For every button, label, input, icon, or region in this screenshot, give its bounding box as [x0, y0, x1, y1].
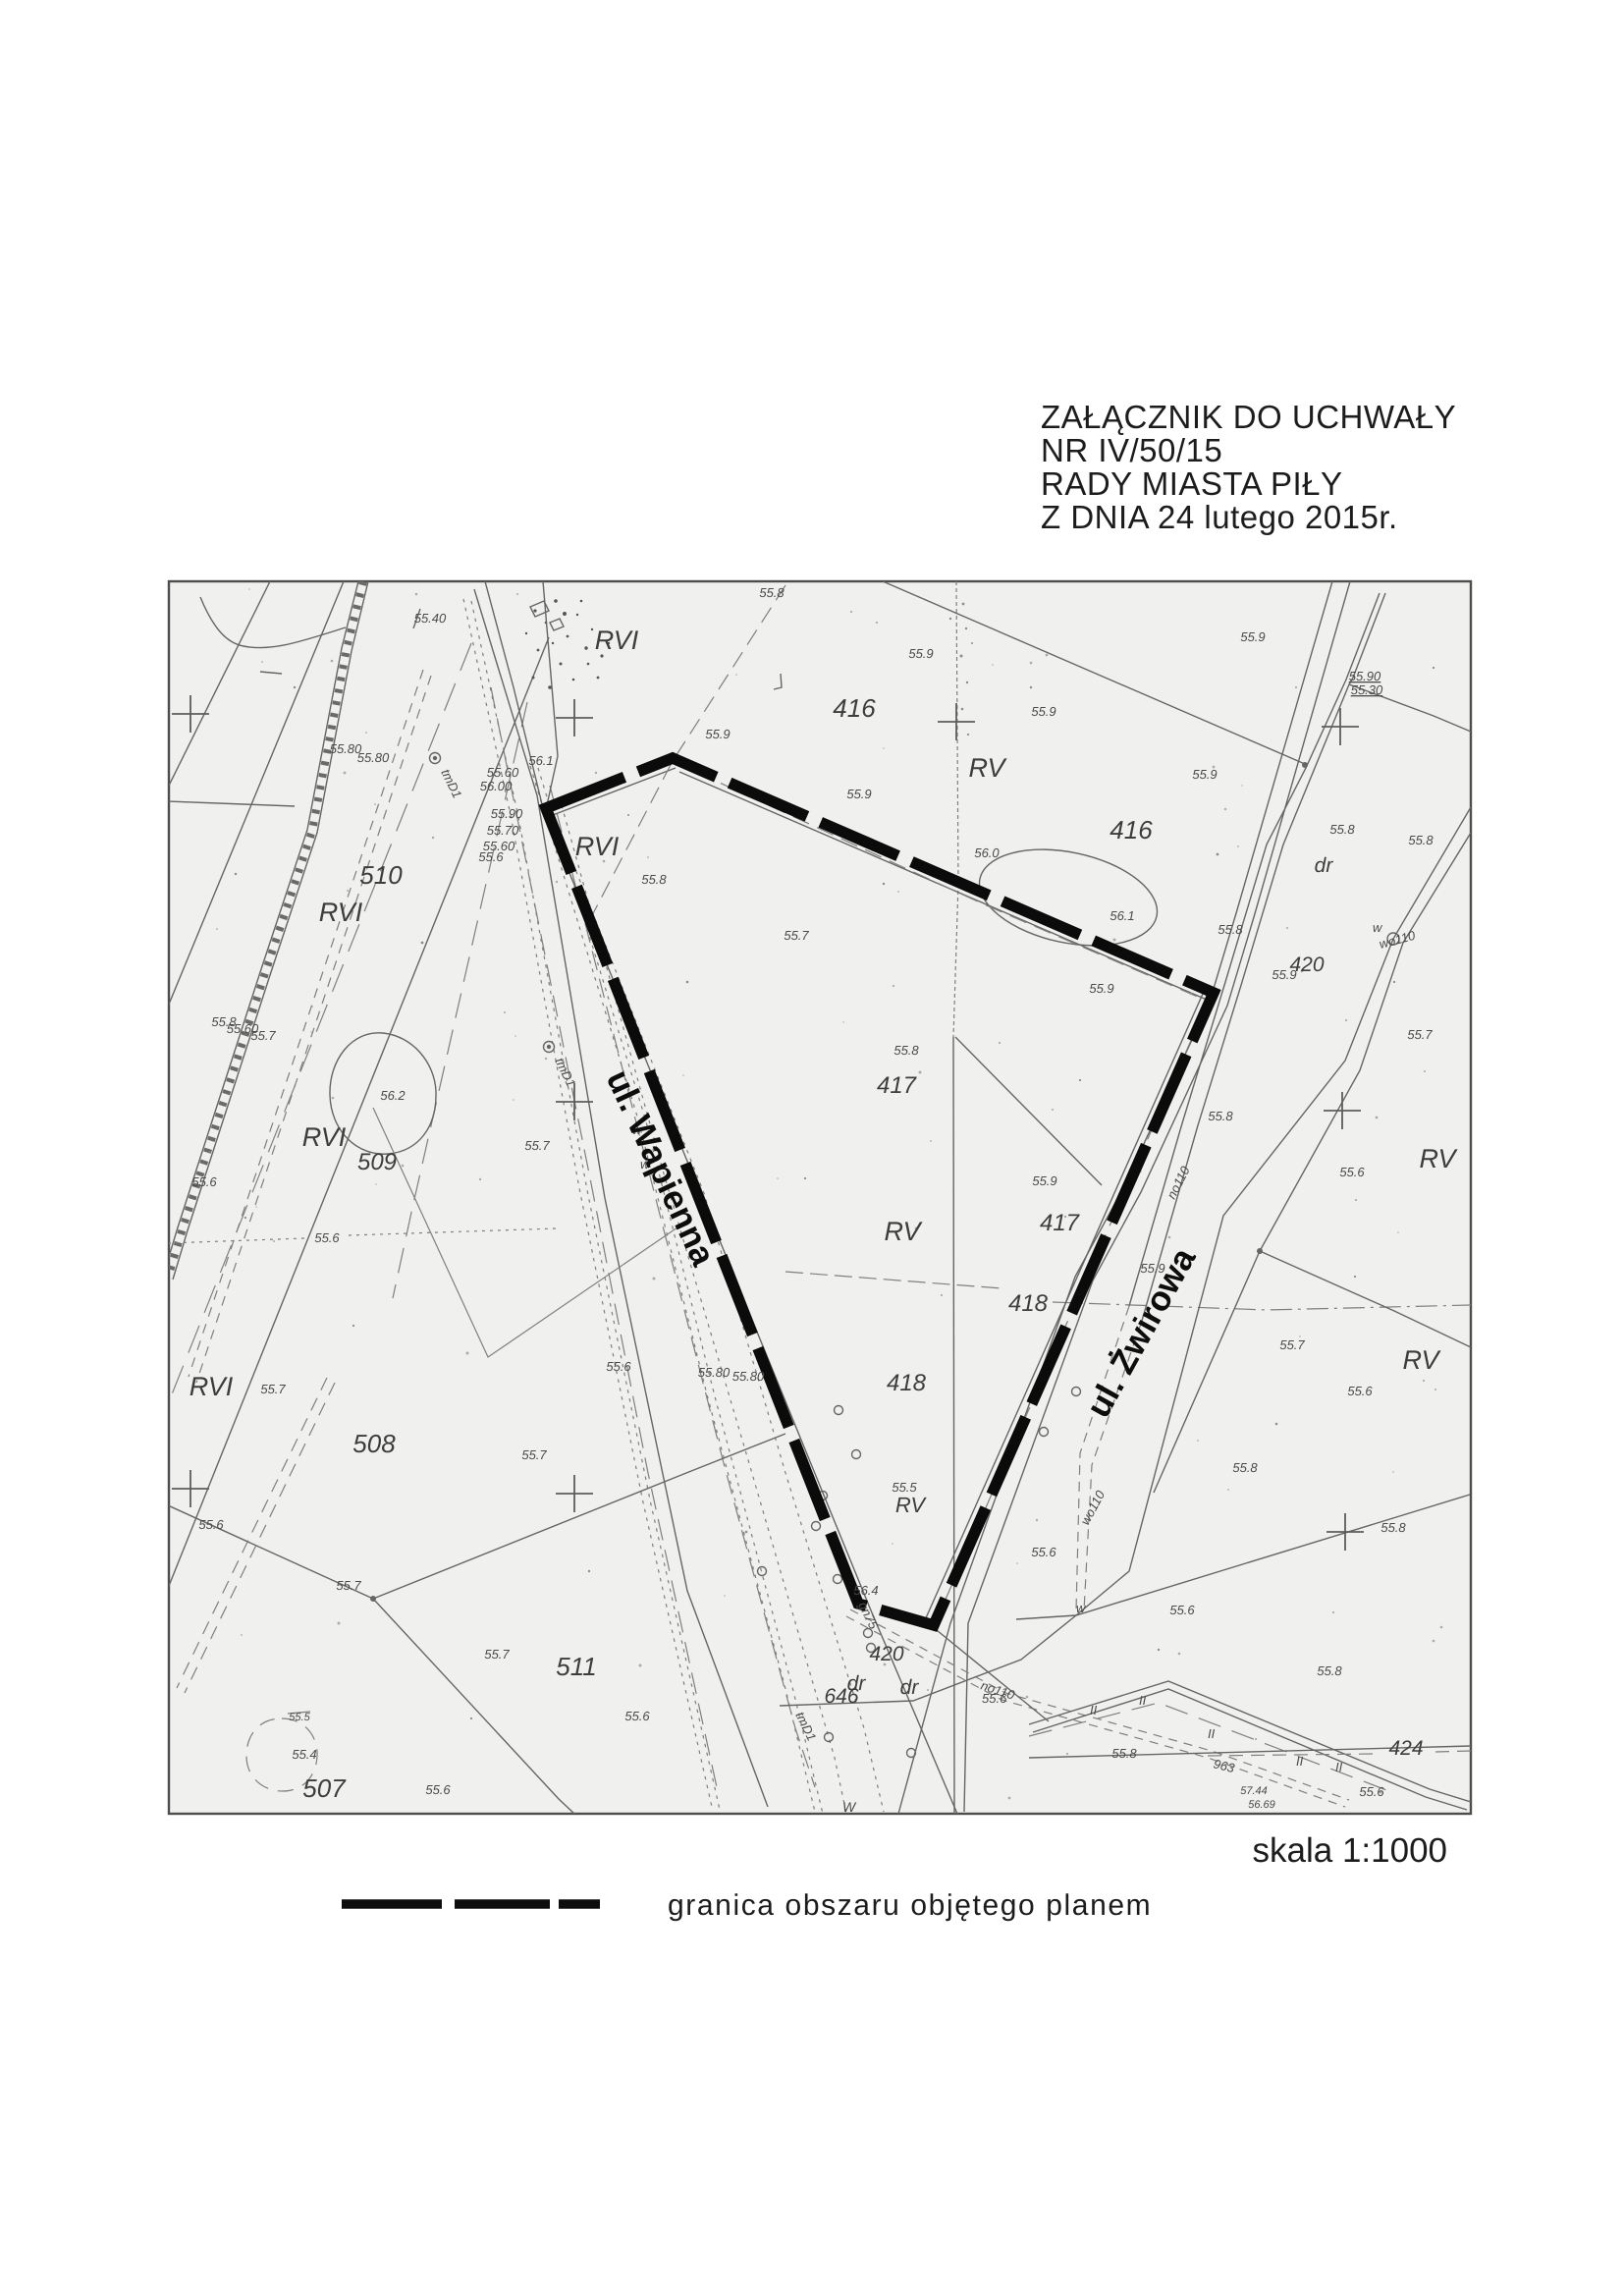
svg-text:dr: dr: [847, 1672, 867, 1695]
svg-text:55.40: 55.40: [414, 611, 447, 626]
svg-text:420: 420: [1289, 954, 1324, 976]
svg-text:55.6: 55.6: [624, 1709, 650, 1723]
svg-text:55.7: 55.7: [784, 928, 809, 943]
svg-text:55.8: 55.8: [1380, 1520, 1406, 1535]
svg-text:55.8: 55.8: [1218, 922, 1243, 937]
svg-text:55.6: 55.6: [1169, 1603, 1195, 1617]
svg-text:55.7: 55.7: [260, 1382, 286, 1396]
svg-text:55.30: 55.30: [1351, 682, 1383, 697]
svg-text:II: II: [1335, 1760, 1343, 1774]
svg-text:57.44: 57.44: [1240, 1785, 1268, 1797]
svg-text:55.9: 55.9: [908, 646, 933, 661]
svg-text:55.7: 55.7: [1279, 1337, 1305, 1352]
svg-text:55.70: 55.70: [487, 823, 519, 838]
svg-text:55.6: 55.6: [606, 1359, 631, 1374]
svg-text:55.9: 55.9: [1031, 704, 1056, 719]
svg-text:55.7: 55.7: [484, 1647, 510, 1662]
svg-text:56.1: 56.1: [528, 753, 553, 768]
svg-text:w: w: [1076, 1601, 1087, 1615]
svg-text:55.8: 55.8: [893, 1043, 919, 1058]
svg-text:55.9: 55.9: [705, 727, 730, 741]
svg-text:II: II: [1208, 1726, 1216, 1741]
svg-text:56.2: 56.2: [380, 1088, 406, 1103]
svg-text:RV: RV: [1402, 1345, 1441, 1375]
svg-text:417: 417: [1040, 1210, 1081, 1236]
svg-text:55.7: 55.7: [250, 1028, 276, 1043]
svg-text:55.8: 55.8: [1111, 1746, 1137, 1761]
svg-text:II: II: [1296, 1754, 1304, 1769]
svg-text:418: 418: [1008, 1290, 1049, 1317]
svg-text:55.7: 55.7: [524, 1138, 550, 1153]
svg-text:55.60: 55.60: [487, 765, 519, 780]
svg-text:55.6: 55.6: [478, 849, 504, 864]
svg-text:RV: RV: [1419, 1144, 1458, 1173]
svg-text:55.6: 55.6: [1031, 1545, 1056, 1559]
svg-text:RVI: RVI: [575, 832, 620, 861]
svg-text:55.6: 55.6: [1359, 1784, 1384, 1799]
svg-text:55.80: 55.80: [698, 1365, 731, 1380]
svg-text:508: 508: [352, 1429, 396, 1458]
svg-text:417: 417: [877, 1072, 918, 1099]
svg-text:w: w: [1373, 920, 1383, 935]
svg-text:416: 416: [833, 693, 876, 723]
svg-text:dr: dr: [1315, 854, 1334, 877]
svg-text:55.7: 55.7: [1407, 1027, 1433, 1042]
svg-text:55.90: 55.90: [1349, 669, 1381, 683]
svg-text:55.90: 55.90: [491, 806, 523, 821]
svg-text:424: 424: [1388, 1737, 1423, 1760]
svg-text:56.00: 56.00: [480, 779, 513, 793]
svg-text:RV: RV: [884, 1217, 923, 1246]
svg-text:55.8: 55.8: [1408, 833, 1434, 847]
svg-text:420: 420: [869, 1643, 903, 1665]
svg-text:RVI: RVI: [302, 1122, 347, 1152]
svg-text:W: W: [842, 1799, 857, 1815]
svg-text:56.69: 56.69: [1248, 1799, 1275, 1811]
svg-text:55.80: 55.80: [732, 1369, 765, 1384]
svg-text:55.6: 55.6: [1339, 1165, 1365, 1179]
svg-text:RV: RV: [895, 1493, 927, 1517]
svg-text:55.8: 55.8: [1232, 1460, 1258, 1475]
svg-text:55.6: 55.6: [191, 1174, 217, 1189]
svg-text:55.80: 55.80: [357, 750, 390, 765]
svg-text:55.4: 55.4: [292, 1747, 316, 1762]
svg-text:55.9: 55.9: [1240, 629, 1265, 644]
svg-text:55.9: 55.9: [1192, 767, 1217, 782]
svg-text:509: 509: [357, 1149, 397, 1175]
svg-text:511: 511: [556, 1652, 596, 1681]
svg-text:II: II: [1139, 1693, 1147, 1708]
svg-text:55.9: 55.9: [1089, 981, 1113, 996]
svg-text:55.5: 55.5: [289, 1712, 310, 1723]
svg-text:55.8: 55.8: [1208, 1109, 1233, 1123]
svg-text:55.9: 55.9: [1032, 1173, 1056, 1188]
svg-text:RV: RV: [968, 753, 1007, 783]
svg-text:II: II: [1090, 1703, 1098, 1717]
svg-text:55.9: 55.9: [846, 787, 871, 801]
svg-text:56.0: 56.0: [974, 845, 1000, 860]
svg-text:skala 1:1000: skala 1:1000: [1253, 1831, 1447, 1870]
svg-text:55.8: 55.8: [641, 872, 667, 887]
svg-text:56.1: 56.1: [1110, 908, 1134, 923]
svg-text:55.6: 55.6: [314, 1230, 340, 1245]
svg-text:granica obszaru objętego plane: granica obszaru objętego planem: [668, 1889, 1152, 1922]
svg-text:55.7: 55.7: [336, 1578, 361, 1593]
svg-text:dr: dr: [900, 1676, 920, 1699]
svg-text:507: 507: [302, 1773, 347, 1803]
svg-text:55.6: 55.6: [1347, 1384, 1373, 1398]
svg-text:510: 510: [359, 860, 403, 890]
svg-text:RVI: RVI: [189, 1372, 234, 1401]
svg-text:55.7: 55.7: [521, 1447, 547, 1462]
svg-text:RVI: RVI: [319, 898, 363, 927]
svg-text:55.6: 55.6: [425, 1782, 451, 1797]
svg-text:55.8: 55.8: [1317, 1663, 1342, 1678]
svg-text:55.6: 55.6: [198, 1517, 224, 1532]
svg-text:55.8: 55.8: [759, 585, 785, 600]
svg-text:416: 416: [1110, 815, 1153, 845]
svg-text:RVI: RVI: [595, 626, 639, 655]
svg-text:55.8: 55.8: [1329, 822, 1355, 837]
svg-text:56.4: 56.4: [853, 1583, 878, 1598]
svg-text:418: 418: [887, 1370, 927, 1396]
